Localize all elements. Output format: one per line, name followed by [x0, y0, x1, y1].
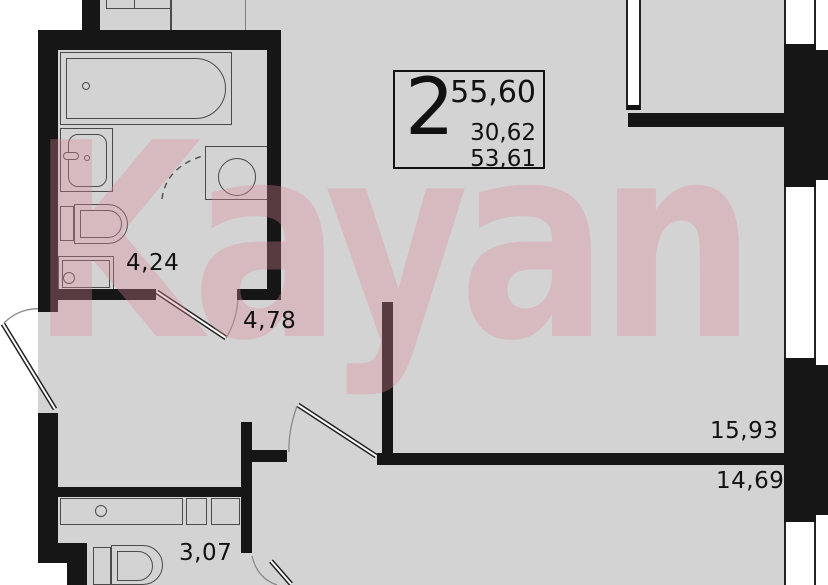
wall-segment: [38, 30, 281, 50]
window: [784, 515, 816, 585]
wall-segment: [628, 113, 789, 127]
window-frame: [784, 44, 816, 50]
window-frame: [784, 358, 816, 365]
wall-segment: [58, 487, 248, 497]
exterior-wall: [784, 50, 828, 180]
wall-segment: [237, 289, 281, 300]
room-area-label-bedroom: 14,69: [716, 468, 784, 494]
title-block-reduced-area: 53,61: [470, 146, 536, 172]
wall-segment: [38, 543, 87, 563]
title-block-living-area: 30,62: [470, 120, 536, 146]
window-glazing: [633, 0, 806, 585]
window-frame: [784, 180, 816, 187]
entrance-door: [3, 309, 56, 409]
title-block-total-area: 55,60: [450, 75, 536, 110]
wall-segment: [267, 30, 281, 300]
wall-segment: [382, 302, 393, 455]
title-block-room-count: 2: [405, 70, 455, 138]
room-area-label-kitchen-living: 15,93: [710, 418, 778, 444]
bedroom-door: [289, 405, 376, 456]
floor-plan-canvas: Kayan: [0, 0, 828, 585]
wall-segment: [38, 289, 156, 300]
title-block: 2 55,60 30,62 53,61: [393, 70, 545, 169]
room-area-label-bathroom2: 3,07: [179, 540, 232, 566]
window-frame: [784, 515, 816, 522]
exterior-wall: [784, 365, 828, 515]
room-area-label-hallway: 4,78: [243, 308, 296, 334]
window: [784, 180, 816, 365]
window: [784, 0, 816, 50]
wall-segment: [250, 450, 287, 462]
room-area-label-bathroom: 4,24: [126, 250, 179, 276]
bathroom-door: [157, 292, 238, 338]
bathroom2-door: [252, 556, 291, 585]
wall-segment: [38, 413, 58, 543]
wall-segment: [377, 453, 789, 465]
wall-segment: [67, 563, 87, 585]
glass-partition: [626, 0, 641, 110]
door-swing-dashed: [162, 155, 206, 199]
wall-segment: [38, 50, 58, 312]
